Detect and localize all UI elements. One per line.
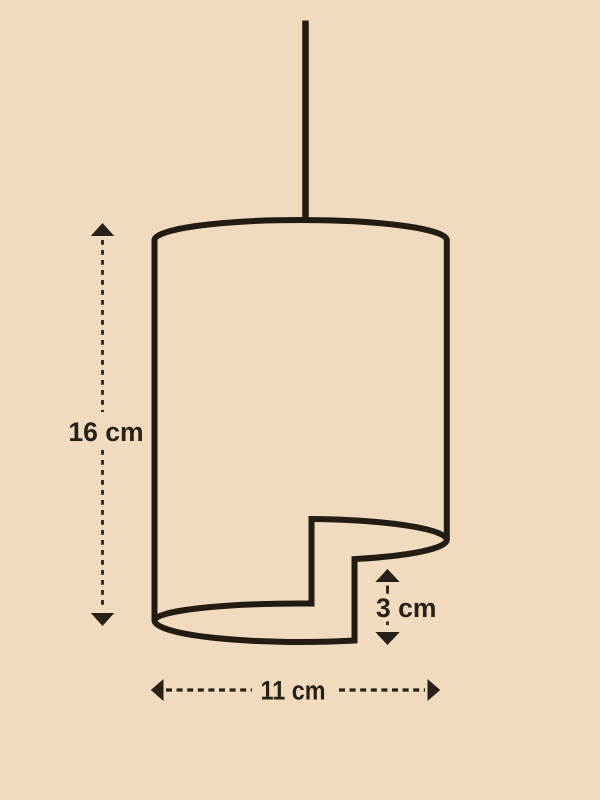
- svg-text:11 cm: 11 cm: [261, 675, 326, 705]
- svg-text:16 cm: 16 cm: [68, 417, 143, 447]
- svg-text:3 cm: 3 cm: [376, 593, 436, 623]
